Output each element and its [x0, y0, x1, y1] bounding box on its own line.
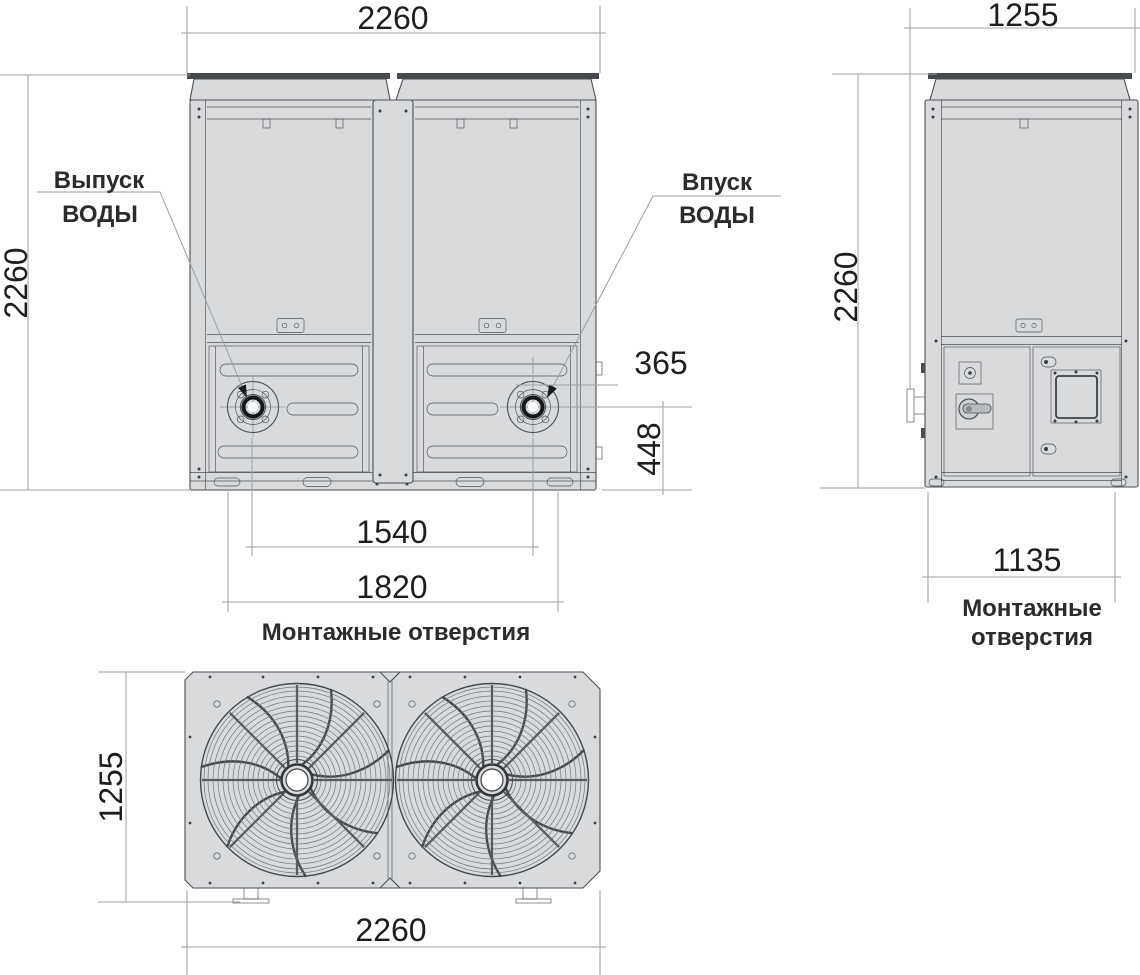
- water-inlet-label-line2: ВОДЫ: [679, 202, 755, 229]
- top-view: 1255 2260: [93, 672, 606, 975]
- pipe-spacing-dimension: 1540: [356, 514, 427, 550]
- side-pipe-stub: [907, 389, 925, 422]
- side-mounting-spacing-dimension: 1135: [993, 542, 1062, 578]
- side-height-dimension: 2260: [828, 251, 864, 322]
- chiller-dimension-drawing: 2260 2260 Выпуск ВОДЫ Впуск ВОДЫ 365 448…: [0, 0, 1140, 975]
- top-width-dimension: 2260: [355, 912, 426, 948]
- technical-drawing-page: 2260 2260 Выпуск ВОДЫ Впуск ВОДЫ 365 448…: [0, 0, 1140, 975]
- mounting-spacing-dimension: 1820: [356, 569, 427, 605]
- front-view: 2260 2260 Выпуск ВОДЫ Впуск ВОДЫ 365 448…: [0, 0, 781, 646]
- inlet-offset-dimension: 365: [634, 345, 687, 381]
- top-depth-dimension: 1255: [93, 751, 129, 822]
- front-unit: [187, 73, 602, 490]
- side-depth-dimension: 1255: [987, 0, 1058, 33]
- side-mounting-holes-label-line1: Монтажные: [962, 595, 1102, 622]
- water-inlet-label-line1: Впуск: [682, 169, 753, 196]
- front-width-dimension: 2260: [357, 0, 428, 36]
- top-unit: [185, 672, 600, 903]
- front-height-dimension: 2260: [0, 247, 34, 318]
- water-outlet-label-line1: Выпуск: [54, 167, 145, 194]
- inlet-height-dimension: 448: [631, 422, 667, 475]
- front-mounting-holes-label: Монтажные отверстия: [262, 619, 530, 646]
- mounting-foot: [233, 888, 551, 903]
- side-view: 1255 2260 1135 Монтажные отверстия: [820, 0, 1140, 651]
- side-mounting-holes-label-line2: отверстия: [971, 624, 1093, 651]
- side-unit: [907, 73, 1138, 487]
- water-outlet-label-line2: ВОДЫ: [62, 201, 138, 228]
